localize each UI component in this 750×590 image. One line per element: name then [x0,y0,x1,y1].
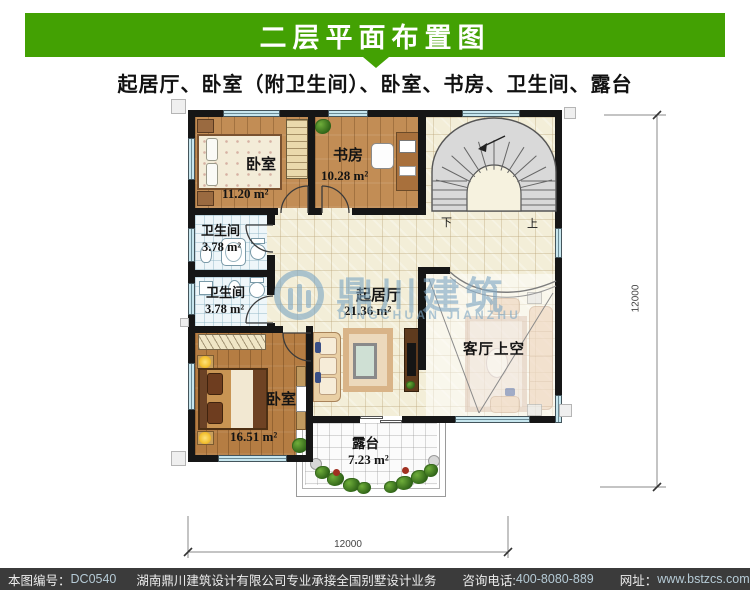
lamp-glow [199,356,211,368]
sliding-door-leaf [360,416,383,419]
page-title: 二层平面布置图 [260,16,491,55]
stair-up-label: 上 [527,215,538,231]
footer-bar: 本图编号： DC0540 湖南鼎川建筑设计有限公司专业承接全国别墅设计业务 咨询… [0,568,750,590]
bedroom1-area: 11.20 m² [222,186,269,202]
void-label: 客厅上空 [463,338,525,359]
window [188,228,195,262]
phone-value: 400-8080-889 [516,572,594,586]
bedroom1-label: 卧室 [246,153,276,174]
armchair [490,396,520,413]
nightstand [197,119,214,133]
window [223,110,280,117]
toilet-tank [250,277,264,283]
window [555,228,562,258]
terrace-area: 7.23 m² [348,452,389,468]
wall [306,326,313,462]
pillow [207,373,223,395]
corner-marker [171,99,186,114]
bedroom2-area: 16.51 m² [230,429,277,445]
phone-label: 咨询电话: [462,570,515,589]
study-label: 书房 [333,144,363,165]
terrace-label: 露台 [352,432,379,452]
bedroom2-label: 卧室 [266,388,296,409]
watermark: 鼎川建筑 DINGCHUAN JIANZHU [268,262,568,337]
toilet-tank [251,238,265,244]
wall [418,110,426,215]
window [462,110,520,117]
study-area: 10.28 m² [321,168,368,184]
corner-marker [171,451,186,466]
lamp-glow [199,432,211,444]
wall [188,208,278,215]
dimension-right: 12000 [630,285,641,313]
website-label: 网址： [620,570,658,589]
side-table [527,404,542,416]
throw-pillow [315,372,321,383]
bathroom2-label: 卫生间 [206,282,245,301]
window [188,283,195,315]
sheet-no-value: DC0540 [71,572,117,586]
pillow [207,402,223,424]
wall [188,270,275,277]
website-value[interactable]: www.bstzcs.com [657,572,749,586]
window [328,110,368,117]
wall [308,110,315,215]
dimension-bottom: 12000 [320,539,376,550]
corner-marker [180,318,189,327]
sofa-cushion [319,337,337,355]
toilet [249,282,265,298]
wall [352,208,426,215]
closet [198,334,266,350]
pillow [206,163,218,186]
sofa-cushion [319,357,337,375]
watermark-en-text: DINGCHUAN JIANZHU [338,308,521,322]
flower-accent [333,469,340,476]
sofa-cushion [319,377,337,395]
window [188,138,195,180]
bathroom1-area: 3.78 m² [202,240,241,255]
tv [407,343,416,376]
watermark-logo-icon [274,270,324,320]
monitor [399,140,416,153]
stair-down-label: 下 [441,214,452,230]
pillow [206,138,218,161]
company-text: 湖南鼎川建筑设计有限公司专业承接全国别墅设计业务 [136,570,436,589]
floor-plan-sheet: 二层平面布置图 起居厅、卧室（附卫生间）、卧室、书房、卫生间、露台 [0,0,750,590]
sliding-door-leaf [380,420,402,423]
wall [308,208,322,215]
sheet-no-label: 本图编号： [8,570,71,589]
header-pointer-triangle [363,57,389,68]
wall [267,215,275,225]
window [455,416,530,423]
window [188,363,195,410]
desk-papers [399,166,416,176]
window [218,455,287,462]
header-bar: 二层平面布置图 [25,13,725,57]
bathroom1-label: 卫生间 [201,220,240,239]
throw-pillow [315,342,321,353]
decor [505,388,515,396]
desk-chair [371,143,394,169]
bathroom2-area: 3.78 m² [205,302,244,317]
toilet [250,244,266,260]
coffee-table [353,343,377,379]
corner-marker [564,107,576,119]
room-list-subtitle: 起居厅、卧室（附卫生间）、卧室、书房、卫生间、露台 [0,68,750,97]
flower-accent [402,467,409,474]
corner-marker [559,404,572,417]
wardrobe [286,119,308,179]
nightstand [197,191,214,206]
